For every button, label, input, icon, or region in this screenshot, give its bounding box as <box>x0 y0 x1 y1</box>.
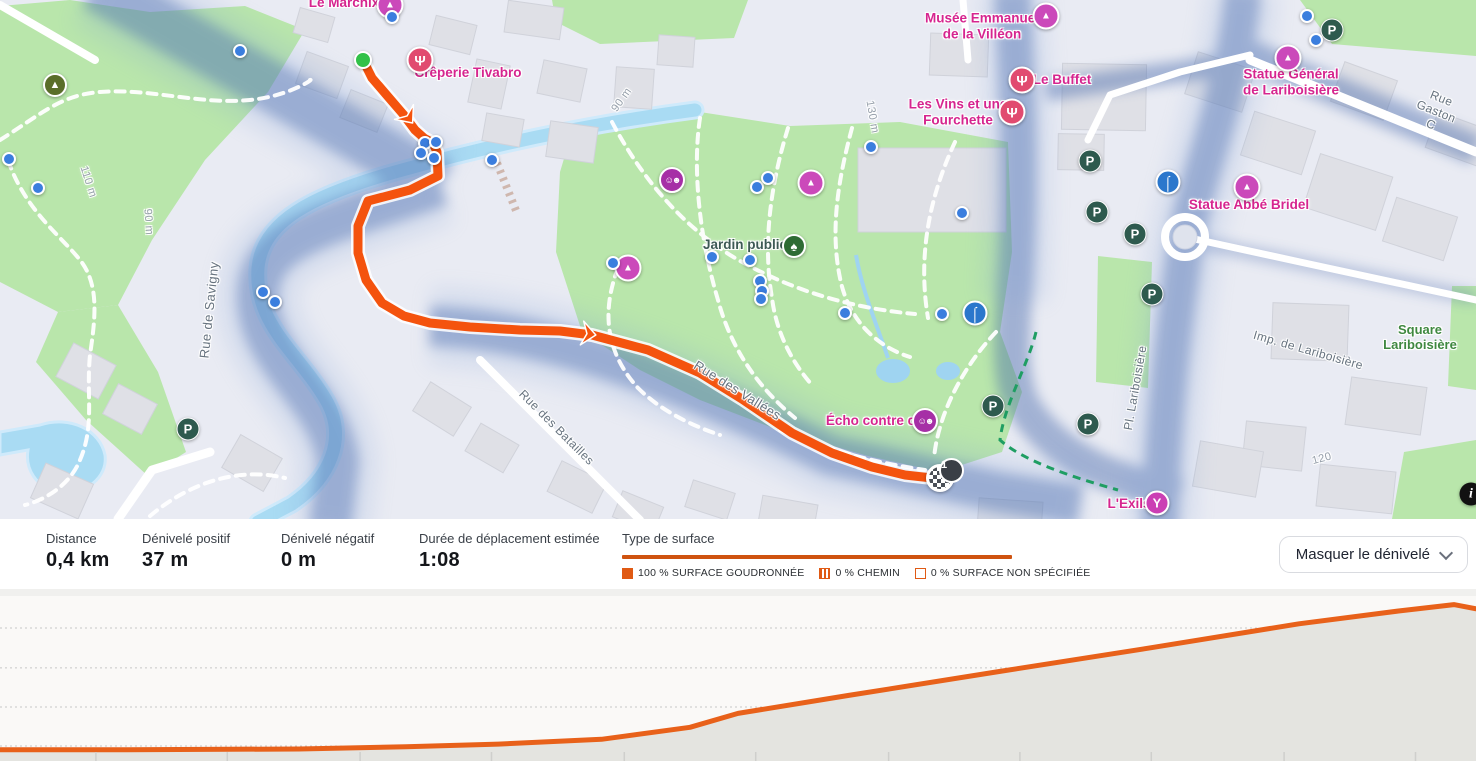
monument-icon: ▲ <box>1242 182 1252 192</box>
mountain-marker[interactable]: ▲ <box>43 73 67 97</box>
masks-marker[interactable]: ☺☻ <box>912 408 938 434</box>
stat-ascent-label: Dénivelé positif <box>142 531 230 546</box>
fountain-marker[interactable]: ⌠ <box>1156 170 1181 195</box>
legend-item-unspecified: 0 % SURFACE NON SPÉCIFIÉE <box>915 567 1091 579</box>
waypoint-marker[interactable] <box>955 206 969 220</box>
section-divider <box>0 589 1476 596</box>
elevation-chart-canvas[interactable] <box>0 596 1476 761</box>
info-marker[interactable]: i <box>1460 483 1476 506</box>
parking-icon: P <box>184 423 193 436</box>
parking-icon: P <box>1084 418 1093 431</box>
stat-descent: Dénivelé négatif 0 m <box>281 531 374 572</box>
info-icon: i <box>1469 487 1473 501</box>
surface-type-bar[interactable] <box>622 555 1012 559</box>
parking-icon: P <box>1093 206 1102 219</box>
restaurant-marker[interactable]: Ψ <box>1009 67 1036 94</box>
monument-icon: ▲ <box>623 263 633 273</box>
parking-marker[interactable]: P <box>1077 413 1100 436</box>
waypoint-marker[interactable] <box>1300 9 1314 23</box>
legend-item-trail-label: 0 % CHEMIN <box>835 567 899 579</box>
monument-marker[interactable]: ▲ <box>1275 45 1302 72</box>
waypoint-marker[interactable] <box>385 10 399 24</box>
waypoint-marker[interactable] <box>606 256 620 270</box>
parking-icon: P <box>989 400 998 413</box>
monument-marker[interactable]: ▲ <box>1033 3 1060 30</box>
legend-item-trail: 0 % CHEMIN <box>819 567 899 579</box>
parking-marker[interactable]: P <box>1321 19 1344 42</box>
poi-label-le-marchix: Le Marchix <box>309 0 380 11</box>
roundabout-center <box>1173 225 1197 249</box>
stat-duration-label: Durée de déplacement estimée <box>419 531 600 546</box>
waypoint-marker[interactable] <box>233 44 247 58</box>
stats-bar: Distance 0,4 km Dénivelé positif 37 m Dé… <box>0 519 1476 589</box>
stat-distance-value: 0,4 km <box>46 549 109 572</box>
parking-marker[interactable]: P <box>1141 283 1164 306</box>
waypoint-marker[interactable] <box>485 153 499 167</box>
waypoint-marker[interactable] <box>838 306 852 320</box>
stat-descent-label: Dénivelé négatif <box>281 531 374 546</box>
tree-icon: ♠ <box>791 240 798 253</box>
stat-ascent: Dénivelé positif 37 m <box>142 531 230 572</box>
masks-icon: ☺☻ <box>665 176 680 185</box>
fountain-icon: ⌠ <box>1164 175 1172 189</box>
parking-icon: P <box>1148 288 1157 301</box>
restaurant-icon: Ψ <box>414 53 425 67</box>
finish-marker[interactable]: 1 <box>926 464 954 492</box>
legend-item-paved-label: 100 % SURFACE GOUDRONNÉE <box>638 567 804 579</box>
monument-marker[interactable]: ▲ <box>1234 174 1261 201</box>
monument-icon: ▲ <box>806 178 816 188</box>
unspecified-swatch-icon <box>915 568 926 579</box>
waypoint-marker[interactable] <box>1309 33 1323 47</box>
poi-label-le-buffet: Le Buffet <box>1033 72 1092 88</box>
tree-marker[interactable]: ♠ <box>782 234 806 258</box>
cocktail-icon: Y <box>1153 497 1162 510</box>
waypoint-marker[interactable] <box>268 295 282 309</box>
waypoint-marker[interactable] <box>754 292 768 306</box>
waypoint-marker[interactable] <box>427 151 441 165</box>
waypoint-marker[interactable] <box>743 253 757 267</box>
mountain-icon: ▲ <box>50 80 61 91</box>
waypoint-marker[interactable] <box>761 171 775 185</box>
finish-number-badge: 1 <box>939 458 964 483</box>
paved-swatch-icon <box>622 568 633 579</box>
route-planner-app: Le MarchixCrêperie TivabroMusée Emmanuel… <box>0 0 1476 761</box>
masks-marker[interactable]: ☺☻ <box>659 167 685 193</box>
parking-marker[interactable]: P <box>177 418 200 441</box>
stat-descent-value: 0 m <box>281 549 374 572</box>
parking-marker[interactable]: P <box>1079 150 1102 173</box>
restaurant-marker[interactable]: Ψ <box>999 99 1026 126</box>
legend-item-unspecified-label: 0 % SURFACE NON SPÉCIFIÉE <box>931 567 1091 579</box>
hide-elevation-button-label: Masquer le dénivelé <box>1296 546 1430 563</box>
parking-icon: P <box>1328 24 1337 37</box>
stat-distance: Distance 0,4 km <box>46 531 109 572</box>
start-marker[interactable] <box>354 51 372 69</box>
waypoint-marker[interactable] <box>31 181 45 195</box>
legend-item-paved: 100 % SURFACE GOUDRONNÉE <box>622 567 804 579</box>
trail-swatch-icon <box>819 568 830 579</box>
parking-icon: P <box>1086 155 1095 168</box>
masks-icon: ☺☻ <box>918 417 933 426</box>
elevation-profile[interactable] <box>0 596 1476 761</box>
waypoint-marker[interactable] <box>935 307 949 321</box>
waypoint-marker[interactable] <box>429 135 443 149</box>
stat-distance-label: Distance <box>46 531 109 546</box>
monument-icon: ▲ <box>1283 53 1293 63</box>
parking-marker[interactable]: P <box>1124 223 1147 246</box>
waypoint-marker[interactable] <box>414 146 428 160</box>
fountain-marker[interactable]: ⌠ <box>963 301 988 326</box>
stat-ascent-value: 37 m <box>142 549 230 572</box>
restaurant-icon: Ψ <box>1006 105 1017 119</box>
poi-label-musee-villeon: Musée Emmanuel de la Villéon <box>925 10 1039 41</box>
monument-icon: ▲ <box>385 0 395 10</box>
poi-label-les-vins: Les Vins et une Fourchette <box>909 96 1008 127</box>
cocktail-marker[interactable]: Y <box>1145 491 1170 516</box>
fountain-icon: ⌠ <box>971 306 979 320</box>
stat-duration-value: 1:08 <box>419 549 600 572</box>
contour-label-90m-left: 90 m <box>141 208 155 235</box>
surface-type-section: Type de surface 100 % SURFACE GOUDRONNÉE… <box>622 531 1014 579</box>
waypoint-marker[interactable] <box>705 250 719 264</box>
restaurant-icon: Ψ <box>1016 73 1027 87</box>
waypoint-marker[interactable] <box>864 140 878 154</box>
hide-elevation-button[interactable]: Masquer le dénivelé <box>1279 536 1468 573</box>
parking-marker[interactable]: P <box>982 395 1005 418</box>
parking-marker[interactable]: P <box>1086 201 1109 224</box>
stat-duration: Durée de déplacement estimée 1:08 <box>419 531 600 572</box>
parking-icon: P <box>1131 228 1140 241</box>
surface-type-title: Type de surface <box>622 531 1014 546</box>
chevron-down-icon <box>1439 545 1453 559</box>
restaurant-marker[interactable]: Ψ <box>407 47 434 74</box>
monument-marker[interactable]: ▲ <box>798 170 825 197</box>
map[interactable]: Le MarchixCrêperie TivabroMusée Emmanuel… <box>0 0 1476 519</box>
surface-type-legend: 100 % SURFACE GOUDRONNÉE 0 % CHEMIN 0 % … <box>622 567 1014 579</box>
waypoint-marker[interactable] <box>2 152 16 166</box>
monument-icon: ▲ <box>1041 11 1051 21</box>
waypoint-marker[interactable] <box>256 285 270 299</box>
park-label-square-lariboisiere: Square Lariboisière <box>1383 323 1457 353</box>
